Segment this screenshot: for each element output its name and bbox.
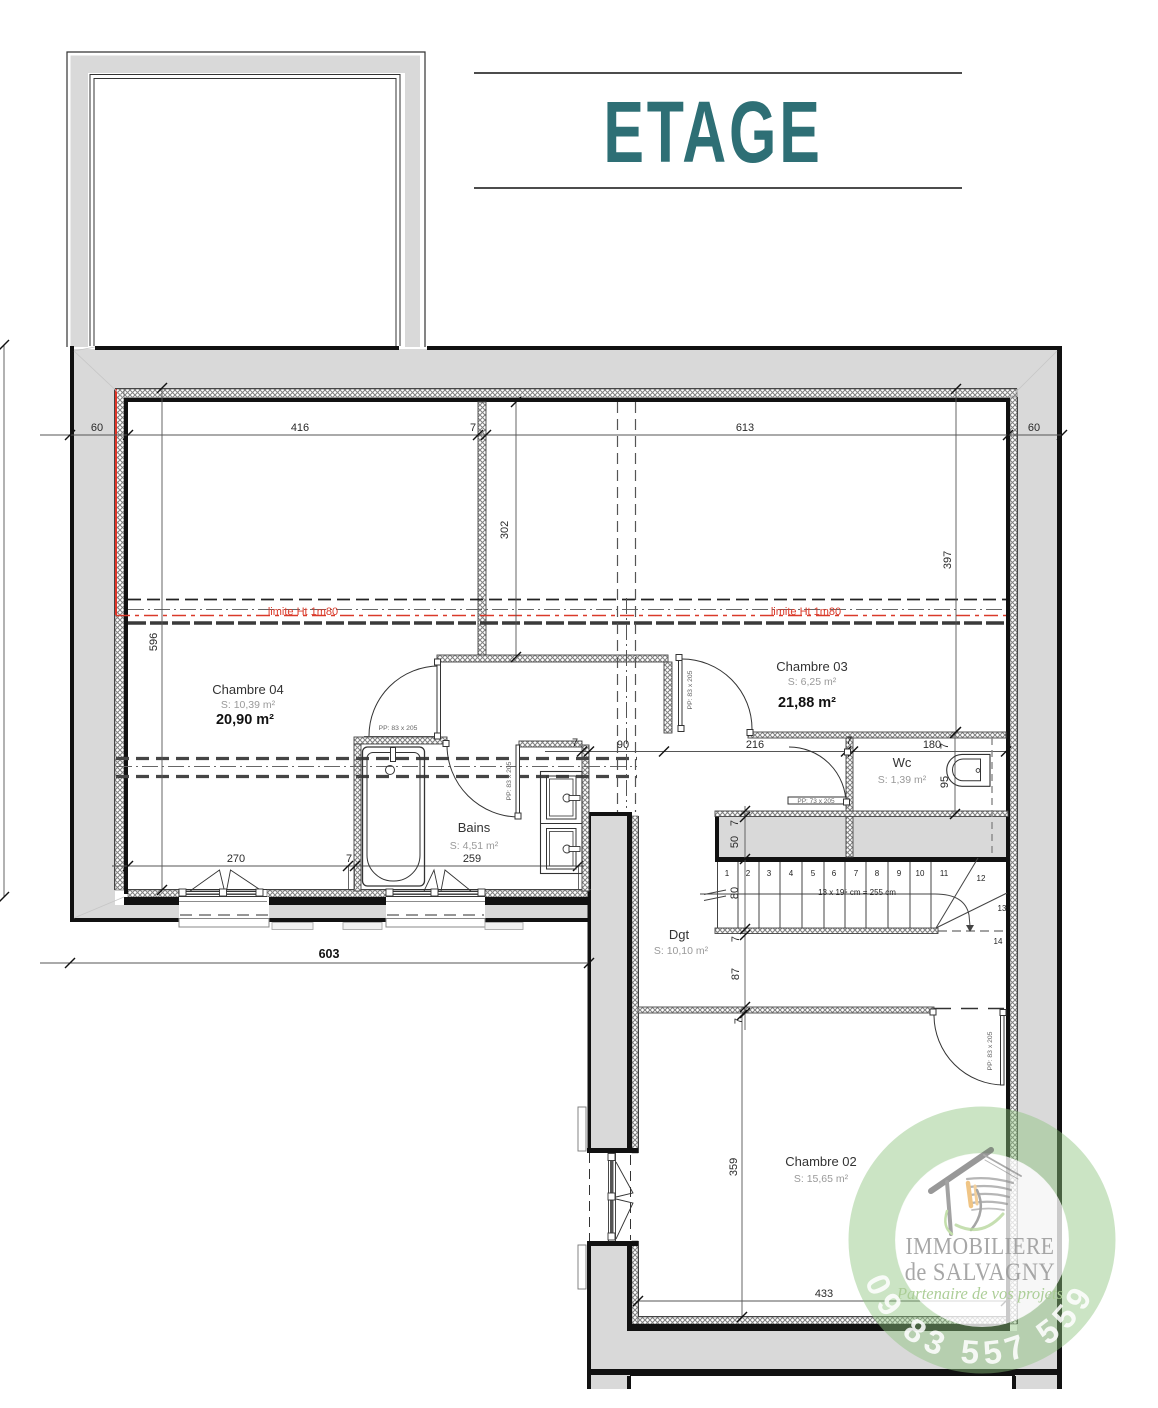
svg-text:397: 397 xyxy=(942,551,954,569)
svg-text:7: 7 xyxy=(572,737,578,749)
svg-text:11: 11 xyxy=(940,869,949,878)
svg-text:80: 80 xyxy=(729,887,741,899)
svg-text:216: 216 xyxy=(746,739,764,751)
svg-text:2: 2 xyxy=(746,869,751,878)
svg-text:S: 4,51 m²: S: 4,51 m² xyxy=(450,840,499,852)
svg-text:596: 596 xyxy=(148,633,160,651)
svg-text:613: 613 xyxy=(736,422,754,434)
svg-text:302: 302 xyxy=(499,521,511,539)
svg-text:PP: 83 x 205: PP: 83 x 205 xyxy=(506,761,513,800)
svg-text:13: 13 xyxy=(998,904,1007,913)
svg-text:7: 7 xyxy=(854,869,859,878)
svg-text:416: 416 xyxy=(291,422,309,434)
svg-text:PP: 83 x 205: PP: 83 x 205 xyxy=(987,1031,994,1070)
svg-text:433: 433 xyxy=(815,1288,833,1300)
svg-text:20,90 m²: 20,90 m² xyxy=(216,712,274,728)
svg-text:de SALVAGNY: de SALVAGNY xyxy=(905,1259,1055,1286)
svg-text:8: 8 xyxy=(875,869,880,878)
svg-text:ETAGE: ETAGE xyxy=(603,83,822,180)
svg-text:7: 7 xyxy=(939,743,951,749)
svg-text:7: 7 xyxy=(846,735,852,747)
svg-text:Chambre 03: Chambre 03 xyxy=(776,659,848,674)
svg-text:7: 7 xyxy=(346,853,352,865)
svg-text:limite Ht 1m80: limite Ht 1m80 xyxy=(268,606,338,618)
svg-text:9: 9 xyxy=(897,869,902,878)
svg-text:359: 359 xyxy=(728,1158,740,1176)
svg-text:3: 3 xyxy=(767,869,772,878)
svg-text:Chambre 02: Chambre 02 xyxy=(785,1154,857,1169)
svg-text:87: 87 xyxy=(730,968,742,980)
svg-text:Dgt: Dgt xyxy=(669,927,690,942)
svg-text:7: 7 xyxy=(730,936,742,942)
svg-text:21,88 m²: 21,88 m² xyxy=(778,695,836,711)
svg-text:Partenaire de vos projets: Partenaire de vos projets xyxy=(896,1284,1063,1303)
svg-text:60: 60 xyxy=(91,422,103,434)
svg-text:1: 1 xyxy=(725,869,730,878)
svg-text:7: 7 xyxy=(470,422,476,434)
svg-text:60: 60 xyxy=(1028,422,1040,434)
svg-text:S: 10,39 m²: S: 10,39 m² xyxy=(221,699,276,711)
svg-text:6: 6 xyxy=(832,869,837,878)
svg-text:7: 7 xyxy=(733,1018,745,1024)
svg-text:90: 90 xyxy=(617,739,629,751)
svg-text:S: 6,25 m²: S: 6,25 m² xyxy=(788,676,837,688)
svg-text:PP: 83 x 205: PP: 83 x 205 xyxy=(379,725,418,732)
svg-text:S: 15,65 m²: S: 15,65 m² xyxy=(794,1173,849,1185)
svg-text:IMMOBILIERE: IMMOBILIERE xyxy=(906,1233,1055,1259)
svg-text:4: 4 xyxy=(789,869,794,878)
svg-text:259: 259 xyxy=(463,853,481,865)
svg-text:Bains: Bains xyxy=(458,820,491,835)
svg-text:95: 95 xyxy=(939,776,951,788)
svg-text:5: 5 xyxy=(811,869,816,878)
svg-text:603: 603 xyxy=(319,947,340,961)
svg-text:14: 14 xyxy=(994,937,1003,946)
svg-text:PP: 83 x 205: PP: 83 x 205 xyxy=(687,670,694,709)
svg-text:13 x 19⁵ cm = 255 cm: 13 x 19⁵ cm = 255 cm xyxy=(818,888,896,897)
svg-text:10: 10 xyxy=(916,869,925,878)
svg-text:12: 12 xyxy=(977,874,986,883)
svg-text:S: 10,10 m²: S: 10,10 m² xyxy=(654,945,709,957)
svg-text:S: 1,39 m²: S: 1,39 m² xyxy=(878,774,927,786)
svg-text:50: 50 xyxy=(729,836,741,848)
svg-text:7: 7 xyxy=(729,820,741,826)
svg-text:270: 270 xyxy=(227,853,245,865)
svg-text:limite Ht 1m80: limite Ht 1m80 xyxy=(771,606,841,618)
svg-text:PP: 73 x 205: PP: 73 x 205 xyxy=(797,798,835,805)
svg-text:Wc: Wc xyxy=(893,755,912,770)
svg-text:Chambre 04: Chambre 04 xyxy=(212,682,284,697)
